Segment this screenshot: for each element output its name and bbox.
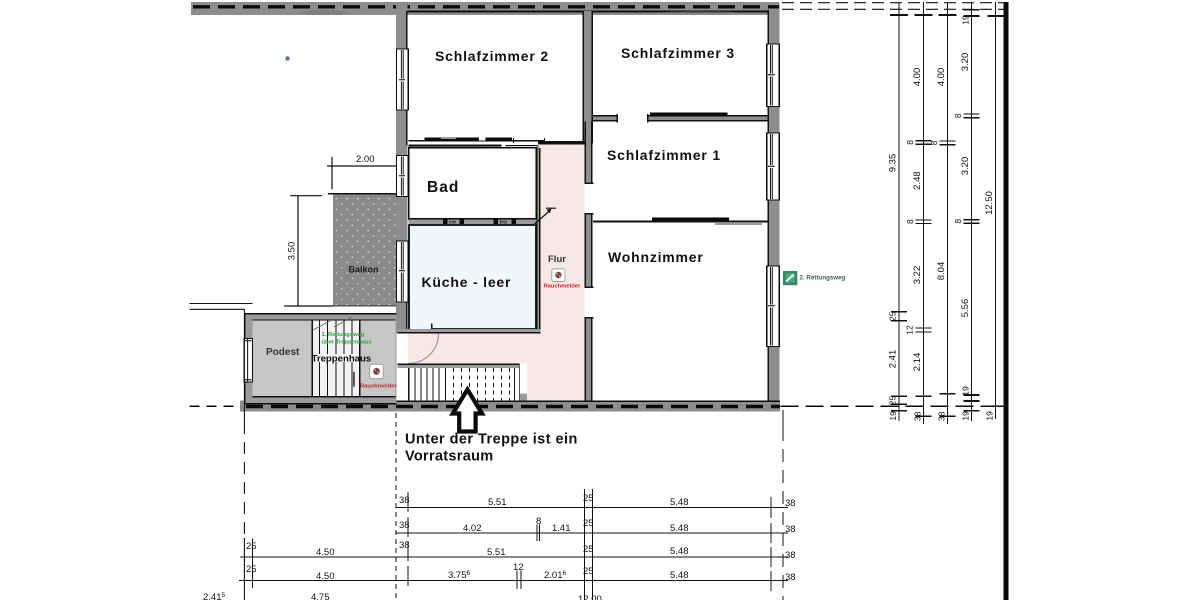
svg-text:4.00: 4.00 <box>936 68 947 87</box>
svg-text:25: 25 <box>888 311 898 321</box>
svg-text:8: 8 <box>953 113 963 118</box>
svg-text:BW: BW <box>500 220 508 225</box>
svg-text:4.00: 4.00 <box>912 68 923 87</box>
svg-text:Rauchmelder: Rauchmelder <box>544 284 581 290</box>
svg-text:SW: SW <box>449 220 457 225</box>
svg-text:1.41: 1.41 <box>552 523 571 534</box>
svg-text:25: 25 <box>583 566 594 577</box>
svg-text:2.00: 2.00 <box>356 154 375 165</box>
svg-text:12.00: 12.00 <box>578 594 602 600</box>
svg-text:8: 8 <box>929 140 939 145</box>
svg-text:25: 25 <box>583 493 594 504</box>
svg-text:5.48: 5.48 <box>670 546 689 557</box>
svg-text:5.51: 5.51 <box>488 497 507 508</box>
svg-text:38: 38 <box>399 520 410 531</box>
svg-text:38: 38 <box>785 572 796 583</box>
svg-text:2. Rettungsweg: 2. Rettungsweg <box>800 275 846 282</box>
svg-text:Balkon: Balkon <box>349 265 379 275</box>
svg-text:3.22: 3.22 <box>912 266 923 285</box>
svg-text:Unter der Treppe ist ein: Unter der Treppe ist ein <box>405 432 578 448</box>
svg-text:19: 19 <box>985 411 995 421</box>
svg-text:5.48: 5.48 <box>670 523 689 534</box>
svg-text:Rauchmelder: Rauchmelder <box>360 383 397 389</box>
svg-text:8: 8 <box>905 140 915 145</box>
svg-text:2.48: 2.48 <box>912 171 923 190</box>
svg-text:über Treppenhaus: über Treppenhaus <box>322 339 372 345</box>
svg-text:12: 12 <box>905 325 915 335</box>
svg-text:19: 19 <box>961 386 971 396</box>
svg-text:Podest: Podest <box>266 347 300 358</box>
svg-text:19: 19 <box>961 15 971 25</box>
svg-text:Wohnzimmer: Wohnzimmer <box>608 249 704 265</box>
svg-text:Küche - leer: Küche - leer <box>422 274 512 290</box>
svg-text:2.415: 2.415 <box>203 592 226 600</box>
svg-text:8: 8 <box>536 516 541 527</box>
svg-text:Vorratsraum: Vorratsraum <box>405 449 493 465</box>
svg-text:38: 38 <box>785 550 796 561</box>
svg-text:12: 12 <box>513 562 524 573</box>
svg-text:5.51: 5.51 <box>487 547 506 558</box>
svg-text:5.48: 5.48 <box>670 570 689 581</box>
svg-text:4.75: 4.75 <box>311 592 330 600</box>
svg-text:4.50: 4.50 <box>316 547 335 558</box>
svg-text:5.48: 5.48 <box>670 497 689 508</box>
svg-text:38: 38 <box>785 524 796 535</box>
svg-text:38: 38 <box>399 495 410 506</box>
svg-text:12.50: 12.50 <box>984 191 995 215</box>
svg-text:Schlafzimmer 1: Schlafzimmer 1 <box>607 147 721 163</box>
svg-text:Treppenhaus: Treppenhaus <box>312 354 372 365</box>
svg-text:Schlafzimmer 2: Schlafzimmer 2 <box>435 48 549 64</box>
svg-text:4.50: 4.50 <box>316 571 335 582</box>
svg-text:19: 19 <box>888 411 898 421</box>
svg-text:2.41: 2.41 <box>888 350 899 369</box>
svg-text:8.04: 8.04 <box>936 262 947 281</box>
svg-text:38: 38 <box>399 540 410 551</box>
svg-text:9.35: 9.35 <box>888 154 899 173</box>
svg-text:Flur: Flur <box>548 254 566 265</box>
svg-text:3.20: 3.20 <box>960 53 971 72</box>
svg-text:38: 38 <box>937 411 947 421</box>
svg-text:8: 8 <box>905 219 915 224</box>
svg-text:4.02: 4.02 <box>463 523 482 534</box>
svg-text:3.20: 3.20 <box>960 157 971 176</box>
svg-text:5.56: 5.56 <box>960 299 971 318</box>
svg-text:3.50: 3.50 <box>287 242 298 261</box>
svg-text:38: 38 <box>785 498 796 509</box>
svg-text:25: 25 <box>246 541 257 552</box>
svg-text:Bad: Bad <box>427 179 459 196</box>
svg-text:25: 25 <box>583 544 594 555</box>
svg-text:19: 19 <box>961 411 971 421</box>
svg-text:2.14: 2.14 <box>912 353 923 372</box>
svg-text:25: 25 <box>583 518 594 529</box>
svg-text:38: 38 <box>913 411 923 421</box>
svg-text:1. Rettungsweg: 1. Rettungsweg <box>322 332 365 338</box>
svg-text:8: 8 <box>953 219 963 224</box>
svg-text:25: 25 <box>246 564 257 575</box>
svg-text:Schlafzimmer 3: Schlafzimmer 3 <box>621 45 735 61</box>
svg-text:25: 25 <box>888 396 898 406</box>
